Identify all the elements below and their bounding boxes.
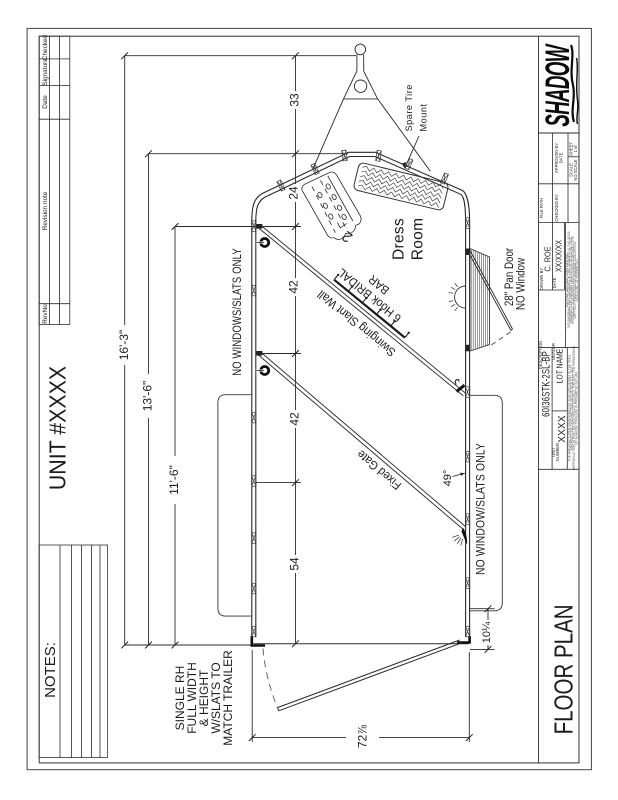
svg-text:NO Window: NO Window (515, 258, 528, 310)
svg-text:FLOOR PLAN: FLOOR PLAN (549, 604, 578, 734)
svg-text:LOT NAME: LOT NAME (555, 349, 565, 384)
svg-text:MATCH TRAILER: MATCH TRAILER (221, 650, 235, 746)
svg-text:72⅞: 72⅞ (356, 724, 370, 748)
svg-text:16'-3": 16'-3" (117, 330, 131, 361)
svg-text:Revision note: Revision note (42, 191, 49, 230)
svg-text:NOTES:: NOTES: (42, 642, 59, 698)
svg-text:54: 54 (288, 557, 302, 571)
svg-text:49°: 49° (442, 470, 454, 487)
svg-text:Checked: Checked (42, 34, 49, 60)
svg-text:DATE: DATE (552, 277, 557, 288)
svg-text:Mount: Mount (419, 103, 429, 131)
svg-text:OF SHADOW TRAILERS IS PROHIBIT: OF SHADOW TRAILERS IS PROHIBITED BY LAW. (574, 371, 578, 445)
svg-text:10¼: 10¼ (481, 621, 493, 643)
svg-text:24: 24 (287, 186, 301, 200)
svg-text:DATE: DATE (558, 152, 563, 163)
svg-text:33: 33 (288, 93, 302, 107)
svg-text:NUMBER: NUMBER (555, 443, 560, 461)
svg-text:SHADOW: SHADOW (538, 43, 576, 126)
svg-text:13'-6": 13'-6" (141, 381, 155, 412)
svg-text:Dress: Dress (390, 218, 407, 260)
svg-text:1 of: 1 of (573, 145, 578, 153)
svg-text:Room: Room (409, 218, 426, 261)
svg-text:XX/XX/XX: XX/XX/XX (554, 240, 564, 272)
svg-text:NO SCALE: NO SCALE (573, 159, 578, 180)
svg-text:FILE PATH: FILE PATH (539, 198, 544, 219)
svg-text:42: 42 (287, 280, 301, 294)
svg-text:Spare Tire: Spare Tire (404, 84, 414, 131)
svg-text:RevNo: RevNo (42, 304, 49, 324)
svg-text:UNIT #XXXX: UNIT #XXXX (45, 366, 71, 490)
svg-text:60I36STK-2SL-BP: 60I36STK-2SL-BP (540, 351, 551, 417)
svg-text:11'-6": 11'-6" (167, 465, 181, 495)
svg-text:OCALA INC. IS PROHIBITED.: OCALA INC. IS PROHIBITED. (575, 258, 579, 301)
svg-text:CHECKED BY: CHECKED BY (554, 194, 559, 221)
svg-text:Signature: Signature (42, 58, 49, 86)
svg-text:42: 42 (288, 412, 302, 426)
svg-text:XXXX: XXXX (557, 415, 568, 443)
svg-text:NO WINDOW/SLATS ONLY: NO WINDOW/SLATS ONLY (475, 443, 488, 575)
svg-text:Date: Date (42, 95, 49, 109)
svg-text:NO WINDOWS/SLATS ONLY: NO WINDOWS/SLATS ONLY (231, 248, 244, 376)
svg-text:C. ROE: C. ROE (543, 246, 553, 271)
